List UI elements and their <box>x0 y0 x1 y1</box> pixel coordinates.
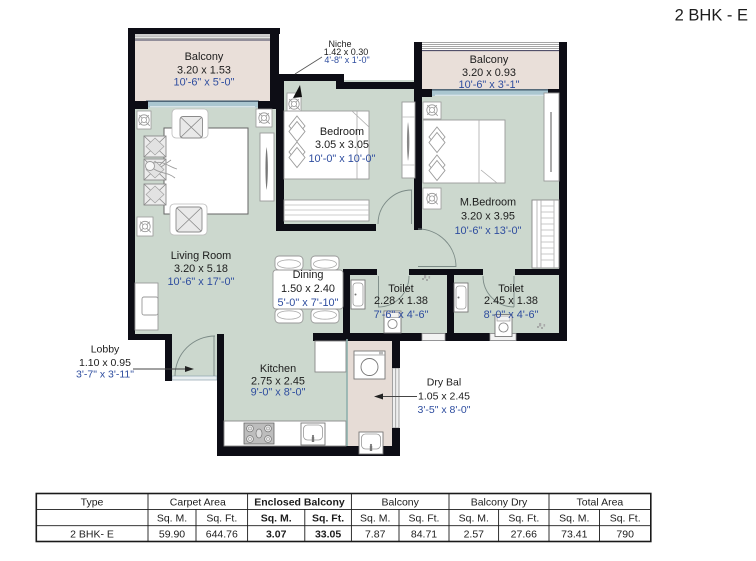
svg-text:10'-6" x 5'-0": 10'-6" x 5'-0" <box>174 77 235 89</box>
svg-text:Lobby: Lobby <box>91 344 120 356</box>
svg-text:84.71: 84.71 <box>411 529 437 541</box>
svg-text:10'-6" x 17'-0": 10'-6" x 17'-0" <box>168 276 235 288</box>
svg-text:1.50 x 2.40: 1.50 x 2.40 <box>281 283 335 295</box>
svg-text:9'-0" x 8'-0": 9'-0" x 8'-0" <box>251 387 306 399</box>
svg-text:10'-6" x 3'-1": 10'-6" x 3'-1" <box>459 79 520 91</box>
svg-text:2 BHK - E: 2 BHK - E <box>675 7 748 25</box>
svg-text:Sq. M.: Sq. M. <box>360 513 390 525</box>
svg-text:Sq. Ft.: Sq. Ft. <box>508 513 539 525</box>
svg-text:2.28 x 1.38: 2.28 x 1.38 <box>374 295 428 307</box>
svg-text:7.87: 7.87 <box>365 529 386 541</box>
svg-text:Total Area: Total Area <box>577 497 624 509</box>
svg-text:3'-5" x 8'-0": 3'-5" x 8'-0" <box>418 404 471 416</box>
svg-text:Balcony Dry: Balcony Dry <box>471 497 528 509</box>
svg-text:Sq. M.: Sq. M. <box>559 513 589 525</box>
svg-text:Balcony: Balcony <box>382 497 420 509</box>
svg-text:Balcony: Balcony <box>470 54 509 66</box>
svg-text:Type: Type <box>81 497 104 509</box>
svg-text:Carpet Area: Carpet Area <box>170 497 226 509</box>
svg-text:Dining: Dining <box>293 269 324 281</box>
svg-text:790: 790 <box>616 529 634 541</box>
svg-text:Toilet: Toilet <box>498 283 523 295</box>
svg-text:59.90: 59.90 <box>159 529 185 541</box>
svg-text:Toilet: Toilet <box>388 283 413 295</box>
svg-text:33.05: 33.05 <box>315 529 341 541</box>
svg-text:3.07: 3.07 <box>266 529 287 541</box>
svg-text:Dry Bal: Dry Bal <box>427 377 461 389</box>
svg-text:Sq. Ft.: Sq. Ft. <box>312 513 344 525</box>
svg-text:M.Bedroom: M.Bedroom <box>460 197 516 209</box>
svg-text:73.41: 73.41 <box>561 529 587 541</box>
svg-text:1.05 x 2.45: 1.05 x 2.45 <box>418 391 470 403</box>
svg-text:3.20 x 5.18: 3.20 x 5.18 <box>174 263 228 275</box>
svg-text:Sq. M.: Sq. M. <box>459 513 489 525</box>
svg-text:Balcony: Balcony <box>185 51 224 63</box>
svg-text:Sq. Ft.: Sq. Ft. <box>409 513 440 525</box>
svg-text:27.66: 27.66 <box>511 529 537 541</box>
svg-text:Bedroom: Bedroom <box>320 126 364 138</box>
svg-text:10'-6" x 13'-0": 10'-6" x 13'-0" <box>455 225 522 237</box>
svg-text:3.20 x 3.95: 3.20 x 3.95 <box>461 211 515 223</box>
svg-text:5'-0" x 7'-10": 5'-0" x 7'-10" <box>278 297 339 309</box>
svg-text:3.05 x 3.05: 3.05 x 3.05 <box>315 139 369 151</box>
svg-text:4'-8" x 1'-0": 4'-8" x 1'-0" <box>324 55 369 65</box>
svg-text:10'-0" x 10'-0": 10'-0" x 10'-0" <box>309 153 376 165</box>
svg-text:2.57: 2.57 <box>464 529 485 541</box>
svg-text:3.20 x 0.93: 3.20 x 0.93 <box>462 67 516 79</box>
svg-text:Sq. M.: Sq. M. <box>157 513 187 525</box>
svg-text:2 BHK- E: 2 BHK- E <box>70 529 114 541</box>
svg-text:3.20 x 1.53: 3.20 x 1.53 <box>177 65 231 77</box>
svg-text:644.76: 644.76 <box>206 529 238 541</box>
svg-text:Enclosed Balcony: Enclosed Balcony <box>254 497 345 509</box>
svg-text:Sq. Ft.: Sq. Ft. <box>610 513 641 525</box>
svg-text:Sq. M.: Sq. M. <box>261 513 292 525</box>
svg-text:7'-6" x 4'-6": 7'-6" x 4'-6" <box>374 309 429 321</box>
svg-text:2.45 x 1.38: 2.45 x 1.38 <box>484 295 538 307</box>
svg-text:Sq. Ft.: Sq. Ft. <box>206 513 237 525</box>
svg-text:8'-0" x 4'-6": 8'-0" x 4'-6" <box>484 309 539 321</box>
svg-text:3'-7" x 3'-11": 3'-7" x 3'-11" <box>76 369 134 381</box>
svg-text:1.10 x 0.95: 1.10 x 0.95 <box>79 357 131 369</box>
svg-text:Kitchen: Kitchen <box>260 363 296 375</box>
svg-text:Living Room: Living Room <box>171 250 232 262</box>
